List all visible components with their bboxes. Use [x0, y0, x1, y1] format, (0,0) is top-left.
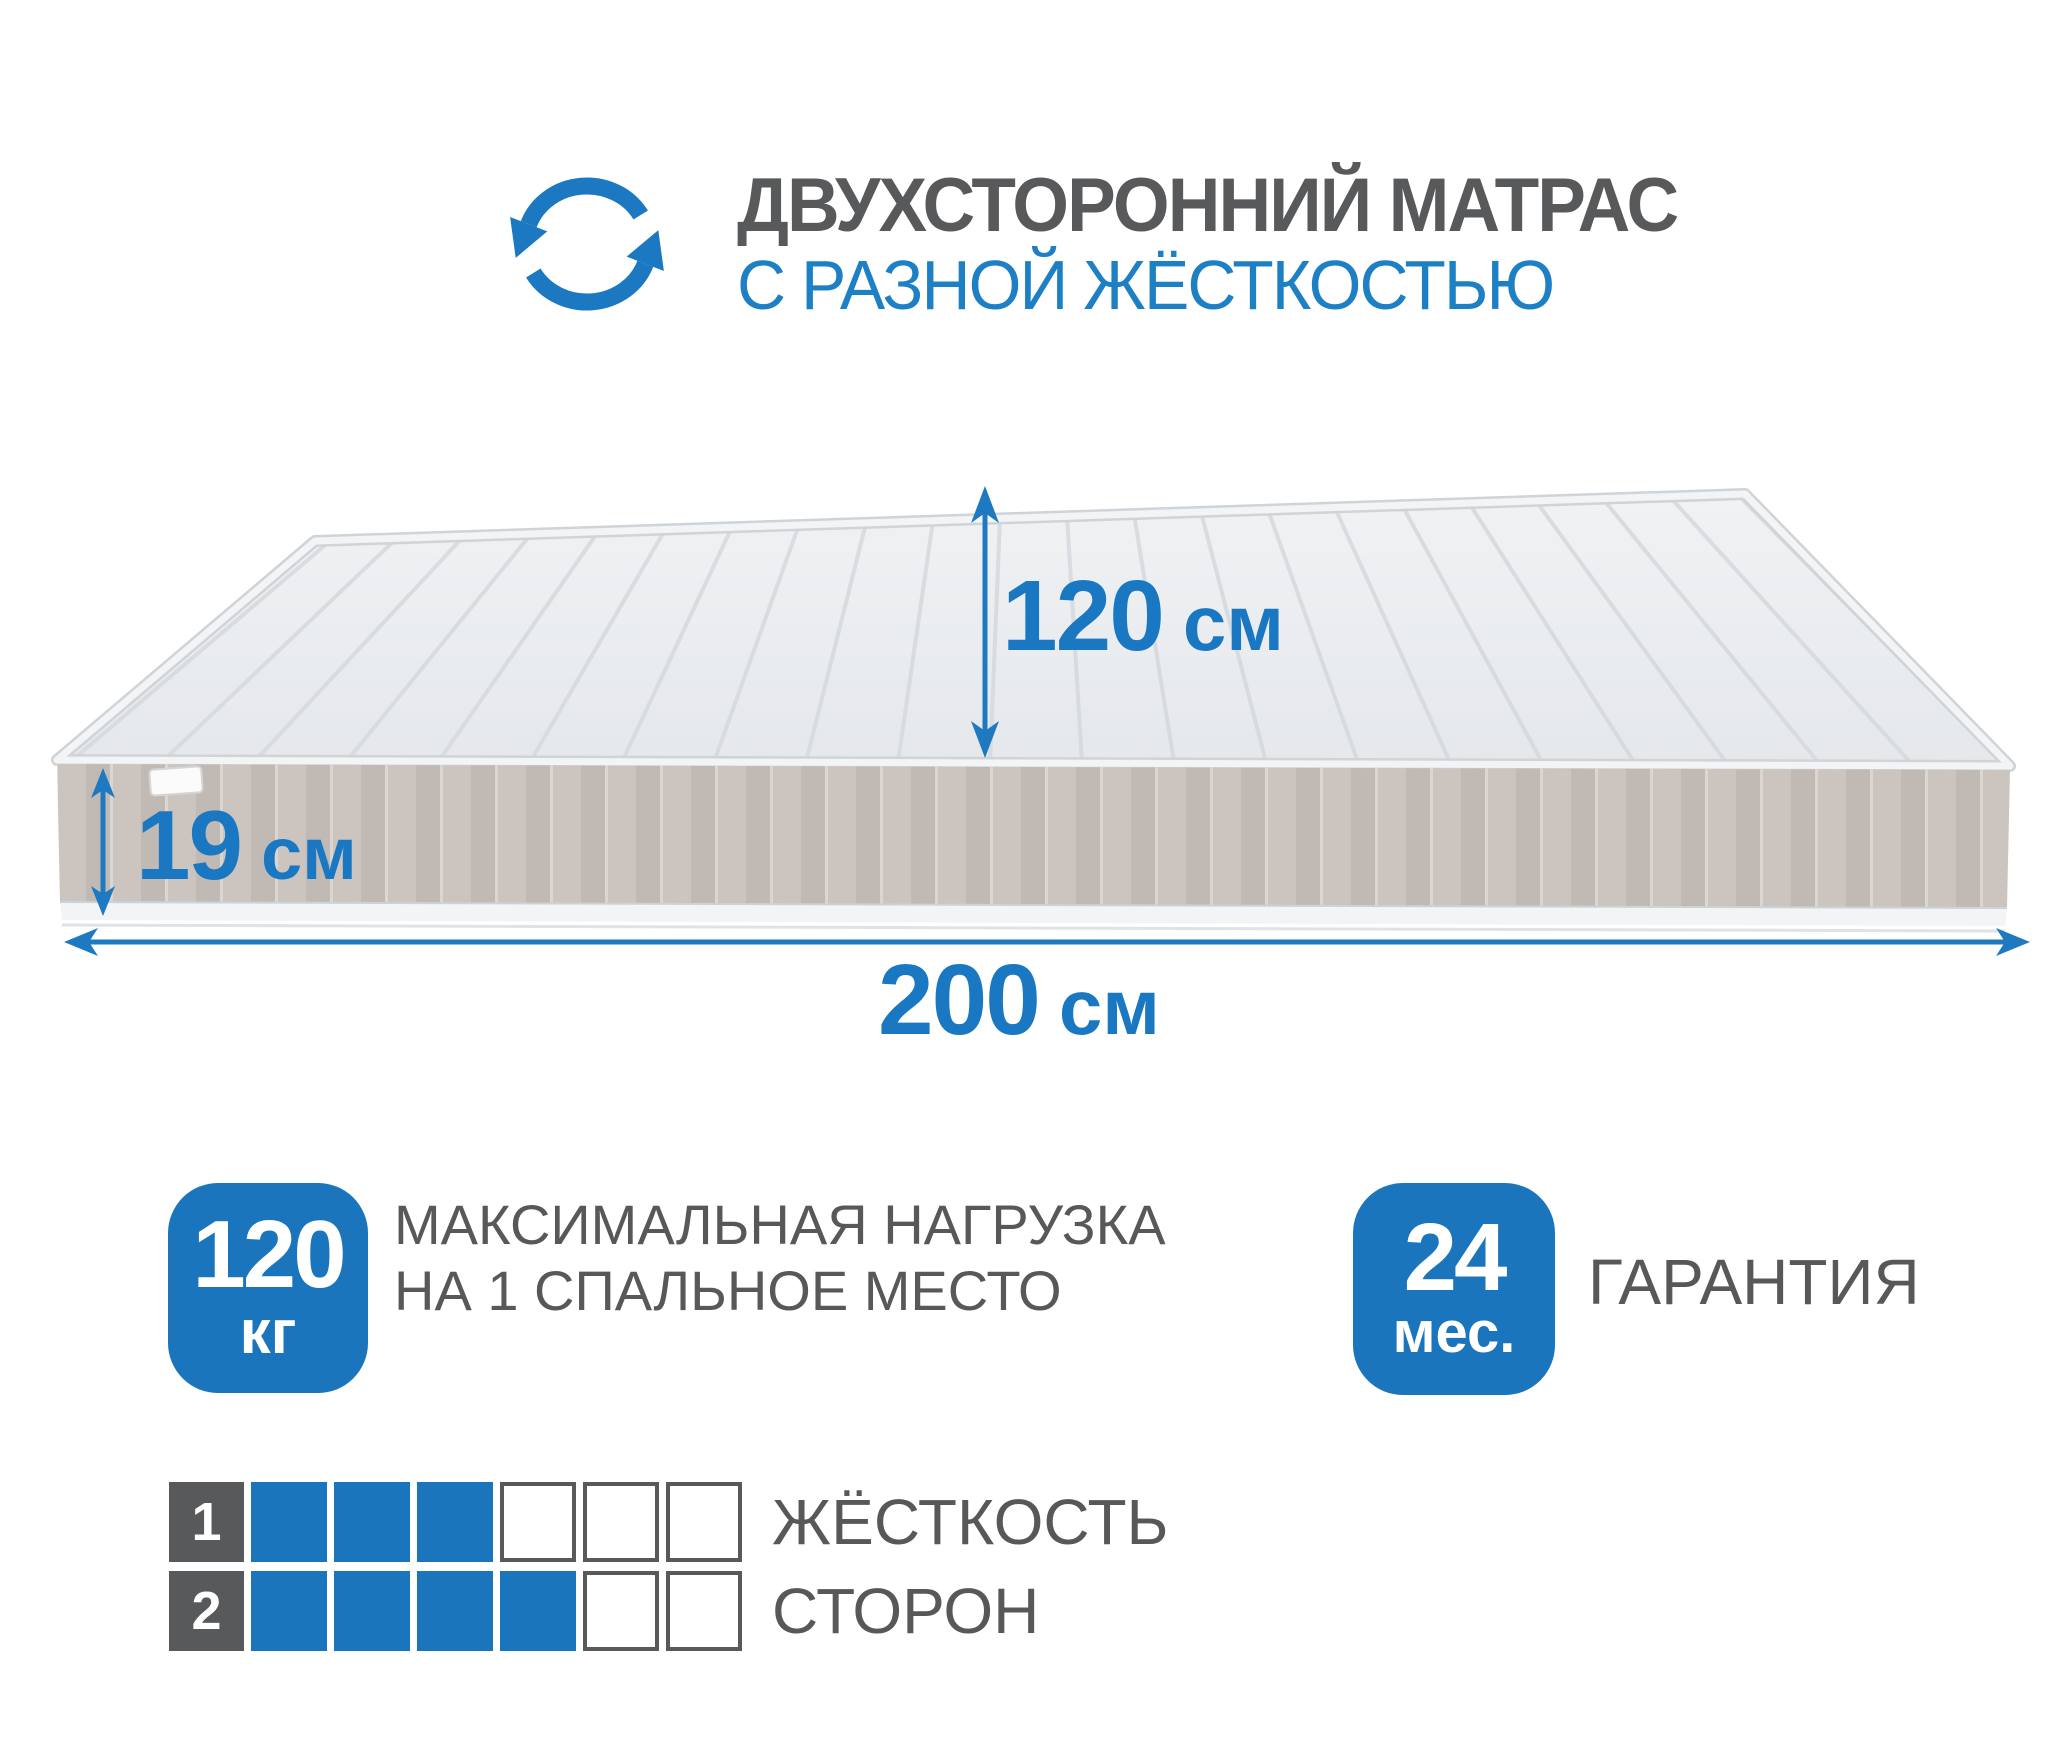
max-load-label: МАКСИМАЛЬНАЯ НАГРУЗКА НА 1 СПАЛЬНОЕ МЕСТ…	[394, 1192, 1166, 1323]
max-load-unit: кг	[240, 1300, 297, 1365]
max-load-label-line1: МАКСИМАЛЬНАЯ НАГРУЗКА	[394, 1192, 1166, 1258]
title-line2: С РАЗНОЙ ЖЁСТКОСТЬЮ	[737, 250, 1553, 320]
max-load-label-line2: НА 1 СПАЛЬНОЕ МЕСТО	[394, 1258, 1166, 1324]
hardness-cell	[666, 1482, 742, 1562]
max-load-badge: 120 кг	[168, 1183, 368, 1393]
length-value: 200	[878, 944, 1039, 1056]
hardness-label-line1: ЖЁСТКОСТЬ	[772, 1490, 1169, 1554]
hardness-side1-cells	[251, 1482, 742, 1562]
title-line1: ДВУХСТОРОННИЙ МАТРАС	[737, 168, 1677, 244]
hardness-side1-index: 1	[169, 1482, 244, 1562]
hardness-cell	[500, 1571, 576, 1651]
height-dimension-label: 19см	[136, 796, 357, 894]
hardness-cell	[666, 1571, 742, 1651]
width-value: 120	[1002, 560, 1163, 672]
hardness-label-line2: СТОРОН	[772, 1579, 1039, 1643]
hardness-side2-cells	[251, 1571, 742, 1651]
hardness-row-side1: 1	[169, 1482, 742, 1562]
height-value: 19	[136, 790, 241, 900]
warranty-label: ГАРАНТИЯ	[1588, 1250, 1920, 1314]
width-unit: см	[1183, 579, 1284, 667]
rotate-arrows-icon	[505, 172, 677, 324]
warranty-badge: 24 мес.	[1353, 1183, 1555, 1395]
length-dimension-label: 200см	[878, 950, 1160, 1050]
height-unit: см	[261, 812, 357, 895]
hardness-cell	[500, 1482, 576, 1562]
hardness-row-side2: 2	[169, 1571, 742, 1651]
hardness-side2-index: 2	[169, 1571, 244, 1651]
hardness-cell	[417, 1571, 493, 1651]
warranty-unit: мес.	[1393, 1303, 1516, 1364]
infographic-canvas: ДВУХСТОРОННИЙ МАТРАС С РАЗНОЙ ЖЁСТКОСТЬЮ…	[0, 0, 2048, 1757]
hardness-cell	[334, 1571, 410, 1651]
hardness-cell	[251, 1571, 327, 1651]
hardness-cell	[334, 1482, 410, 1562]
max-load-value: 120	[192, 1211, 343, 1299]
warranty-value: 24	[1404, 1214, 1505, 1302]
length-unit: см	[1059, 963, 1160, 1051]
hardness-cell	[583, 1571, 659, 1651]
hardness-cell	[417, 1482, 493, 1562]
hardness-cell	[583, 1482, 659, 1562]
hardness-cell	[251, 1482, 327, 1562]
width-dimension-label: 120см	[1002, 566, 1284, 666]
